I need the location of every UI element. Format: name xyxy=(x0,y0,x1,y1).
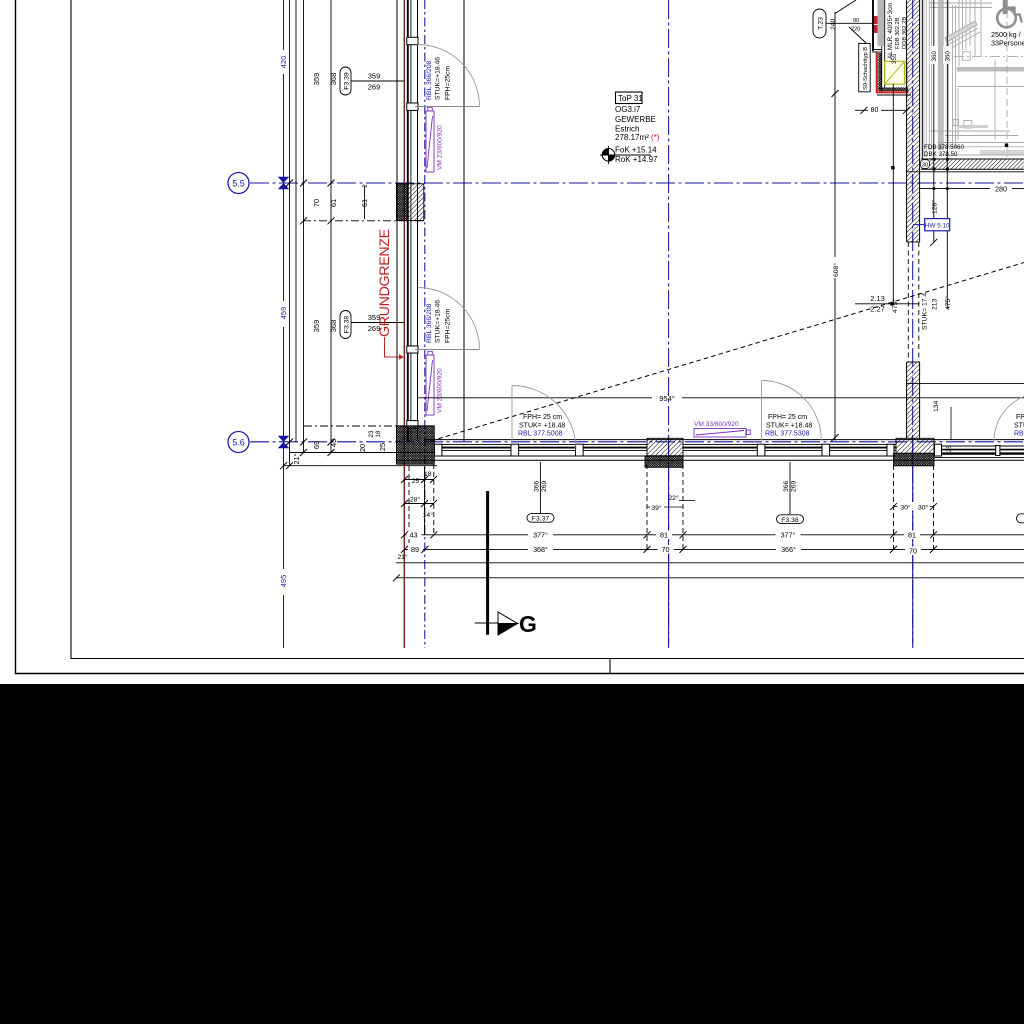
svg-text:STUK=+18.46: STUK=+18.46 xyxy=(435,300,442,343)
svg-text:FPH= 25 cm: FPH= 25 cm xyxy=(523,414,562,421)
svg-text:21°: 21° xyxy=(397,553,408,561)
svg-text:28°: 28° xyxy=(410,496,421,504)
svg-text:GEWERBE: GEWERBE xyxy=(615,115,656,124)
svg-text:954°: 954° xyxy=(659,394,675,403)
svg-text:RBL 366/208: RBL 366/208 xyxy=(426,303,433,343)
svg-text:23: 23 xyxy=(369,430,375,437)
svg-text:F3.37: F3.37 xyxy=(532,516,550,523)
svg-text:128°: 128° xyxy=(931,200,939,214)
svg-text:5.5: 5.5 xyxy=(232,178,245,188)
svg-text:FPH: FPH xyxy=(1016,414,1024,421)
svg-text:F3.39: F3.39 xyxy=(344,72,351,90)
svg-text:70: 70 xyxy=(312,199,321,207)
svg-text:25: 25 xyxy=(947,445,953,452)
svg-text:61: 61 xyxy=(329,199,338,207)
svg-text:43: 43 xyxy=(410,531,418,540)
svg-text:STUK: STUK xyxy=(1014,423,1024,430)
svg-text:366: 366 xyxy=(534,480,541,492)
svg-text:RBL 366/208: RBL 366/208 xyxy=(426,60,433,100)
svg-text:GRUNDGRENZE: GRUNDGRENZE xyxy=(377,229,393,337)
svg-text:RBL 377.5308: RBL 377.5308 xyxy=(765,431,810,438)
svg-text:21°: 21° xyxy=(292,453,301,464)
svg-text:FoK +15.14: FoK +15.14 xyxy=(615,146,657,155)
svg-text:359: 359 xyxy=(368,72,381,81)
svg-text:608°: 608° xyxy=(832,263,840,277)
svg-text:366°: 366° xyxy=(781,545,796,554)
svg-text:FPH=25cm: FPH=25cm xyxy=(445,65,452,100)
svg-text:AL MLR. 40/35+3cm: AL MLR. 40/35+3cm xyxy=(887,3,894,59)
svg-text:T.23: T.23 xyxy=(818,17,825,30)
svg-text:S9-Schachttyp B: S9-Schachttyp B xyxy=(863,47,869,90)
svg-text:25: 25 xyxy=(412,478,420,485)
svg-text:240: 240 xyxy=(830,18,837,30)
svg-text:FDB 378.5060: FDB 378.5060 xyxy=(924,144,964,151)
svg-text:459: 459 xyxy=(279,307,288,320)
svg-text:FPH=25cm: FPH=25cm xyxy=(445,308,452,343)
svg-text:368: 368 xyxy=(329,320,338,333)
svg-text:70: 70 xyxy=(909,547,917,556)
svg-text:360: 360 xyxy=(931,50,938,61)
svg-text:RoK +14.97: RoK +14.97 xyxy=(615,155,658,164)
svg-text:STUK=+18.46: STUK=+18.46 xyxy=(435,57,442,100)
svg-text:ToP 31: ToP 31 xyxy=(618,94,643,103)
svg-text:2.27: 2.27 xyxy=(870,305,885,314)
svg-text:30°: 30° xyxy=(918,504,929,512)
svg-text:25: 25 xyxy=(378,443,387,451)
svg-text:VM 23/600/920: VM 23/600/920 xyxy=(437,125,444,170)
svg-text:81: 81 xyxy=(660,531,668,540)
svg-text:30: 30 xyxy=(922,163,928,169)
svg-text:220: 220 xyxy=(851,27,860,33)
svg-text:F3.38: F3.38 xyxy=(781,517,799,524)
svg-text:STUK= +18.48: STUK= +18.48 xyxy=(519,423,565,430)
svg-text:RBL 377.5008: RBL 377.5008 xyxy=(518,431,563,438)
svg-text:269: 269 xyxy=(541,480,548,492)
svg-text:80: 80 xyxy=(871,107,879,114)
svg-text:280: 280 xyxy=(995,185,1007,194)
svg-text:FDB 302.2B: FDB 302.2B xyxy=(895,17,901,49)
svg-text:18: 18 xyxy=(376,430,382,437)
svg-text:360: 360 xyxy=(945,50,952,61)
svg-text:VM 33/600/920: VM 33/600/920 xyxy=(694,421,739,428)
svg-text:69: 69 xyxy=(312,441,321,449)
svg-text:366: 366 xyxy=(783,480,790,492)
svg-text:278.17m²: 278.17m² xyxy=(615,133,649,142)
svg-text:FPH= 25 cm: FPH= 25 cm xyxy=(768,414,807,421)
svg-text:359: 359 xyxy=(312,320,321,333)
svg-text:RBL: RBL xyxy=(1014,431,1024,438)
svg-text:STUK= 17.4: STUK= 17.4 xyxy=(922,293,929,330)
svg-text:475°: 475° xyxy=(944,296,952,310)
svg-text:18: 18 xyxy=(424,471,432,478)
svg-text:33Personen: 33Personen xyxy=(991,39,1024,48)
svg-text:14°: 14° xyxy=(423,511,434,519)
svg-text:G: G xyxy=(519,611,537,637)
svg-text:VM 23/600/920: VM 23/600/920 xyxy=(437,368,444,413)
svg-text:22°: 22° xyxy=(668,494,679,502)
svg-text:420: 420 xyxy=(279,56,288,69)
svg-text:368: 368 xyxy=(329,73,338,86)
svg-text:495: 495 xyxy=(279,575,288,588)
svg-text:5.6: 5.6 xyxy=(232,437,245,447)
svg-text:30°: 30° xyxy=(900,504,911,512)
svg-text:70: 70 xyxy=(662,545,670,554)
svg-text:OG3.i7: OG3.i7 xyxy=(615,105,641,114)
svg-text:213: 213 xyxy=(932,298,939,310)
svg-text:377°: 377° xyxy=(781,531,796,540)
svg-text:368°: 368° xyxy=(533,545,548,554)
svg-text:269: 269 xyxy=(791,480,798,492)
svg-text:39°: 39° xyxy=(651,504,662,512)
svg-text:HW 5.10: HW 5.10 xyxy=(925,223,950,230)
svg-text:134: 134 xyxy=(933,400,940,412)
svg-text:359: 359 xyxy=(312,73,321,86)
svg-text:355: 355 xyxy=(891,53,898,64)
svg-text:377°: 377° xyxy=(533,531,548,540)
svg-text:269: 269 xyxy=(368,83,381,92)
svg-text:61: 61 xyxy=(360,199,369,207)
svg-text:475°: 475° xyxy=(891,299,899,313)
svg-text:20: 20 xyxy=(358,444,367,452)
svg-text:F3.38: F3.38 xyxy=(344,316,351,334)
svg-text:DBK 378.50: DBK 378.50 xyxy=(924,151,958,158)
svg-text:89: 89 xyxy=(411,545,419,554)
svg-text:STUK= +18.48: STUK= +18.48 xyxy=(766,423,812,430)
svg-text:2.13: 2.13 xyxy=(870,294,885,303)
svg-text:(*): (*) xyxy=(651,133,660,142)
svg-text:81: 81 xyxy=(908,531,916,540)
